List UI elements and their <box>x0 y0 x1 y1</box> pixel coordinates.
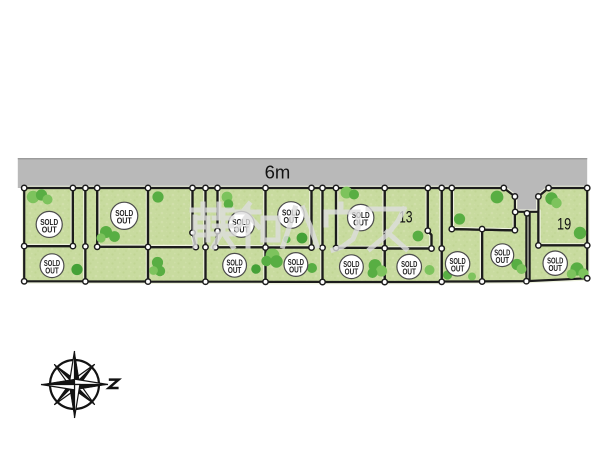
svg-text:6m: 6m <box>265 162 291 183</box>
svg-text:OUT: OUT <box>45 267 59 276</box>
svg-text:OUT: OUT <box>228 266 242 275</box>
svg-text:OUT: OUT <box>548 264 562 273</box>
svg-text:19: 19 <box>557 215 571 233</box>
svg-text:OUT: OUT <box>117 216 133 226</box>
svg-text:OUT: OUT <box>42 224 58 234</box>
svg-text:OUT: OUT <box>402 268 416 277</box>
svg-text:OUT: OUT <box>451 265 465 274</box>
svg-text:OUT: OUT <box>289 265 303 274</box>
svg-text:OUT: OUT <box>345 268 359 277</box>
svg-text:OUT: OUT <box>496 256 510 265</box>
